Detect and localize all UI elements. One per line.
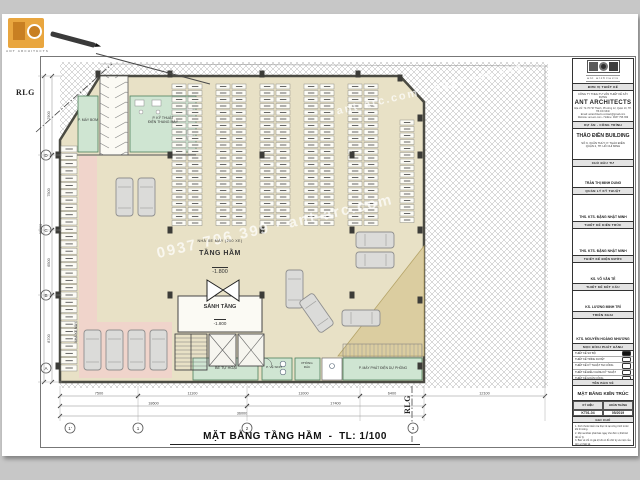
notes: 1. Kích thước kiểm tra thực tế tại công … xyxy=(573,423,633,448)
sheet-title: MẶT BẰNG TẦNG HẦM - TL: 1/100 xyxy=(170,431,420,445)
structural-column xyxy=(356,71,361,78)
structural-column xyxy=(350,292,355,299)
lobby-level: -1.800 xyxy=(214,319,227,326)
drawing-meta: KÝ HIỆU HOÀN THÀNH KT01-04 05/2019 xyxy=(573,400,633,416)
drawing-name-header: TÊN BẢN VẼ xyxy=(573,379,633,386)
role-sign-1: THS. KTS. ĐẶNG NHẬT MINH xyxy=(573,195,633,221)
equipment-box xyxy=(135,100,144,106)
structural-column xyxy=(350,227,355,234)
role-header-0: CHỦ ĐẦU TƯ xyxy=(573,159,633,167)
dimension-value: 17400 xyxy=(330,402,341,406)
chair xyxy=(156,110,160,114)
basement-label: TẦNG HẦM xyxy=(180,250,260,259)
pump-room xyxy=(78,96,98,152)
checkbox xyxy=(622,363,631,368)
role-header-4: THIẾT KẾ KẾT CẤU xyxy=(573,283,633,291)
notes-header: GHI CHÚ xyxy=(573,416,633,423)
role-sign-0: TRẦN THỊ MINH DUNG xyxy=(573,167,633,187)
structural-column xyxy=(398,75,403,82)
checkbox xyxy=(622,357,631,362)
role-header-2: THIẾT KẾ KIẾN TRÚC xyxy=(573,221,633,229)
role-sign-4: KS. LƯƠNG MINH TRÍ xyxy=(573,291,633,311)
screenshot-root: { "plan": { "title": "MẶT BẰNG TẦNG HẦM"… xyxy=(0,0,640,480)
structural-column xyxy=(260,71,265,78)
structural-column xyxy=(418,297,423,304)
symbol-label: KÝ HIỆU xyxy=(573,401,603,410)
rlg-label-bottom: RLG xyxy=(403,395,412,414)
car xyxy=(356,232,394,248)
role-sign-2: THS. KTS. ĐẶNG NHẬT MINH xyxy=(573,229,633,255)
ant-architects-logo-icon xyxy=(587,60,620,73)
electrical-room-label2: ĐIỆN THANG MÁY xyxy=(132,120,194,124)
car xyxy=(84,330,101,370)
dimension-value: 8700 xyxy=(47,334,51,342)
rlg-label-top: RLG xyxy=(16,88,35,97)
role-sign-3: KS. VÕ VĂN TẾ xyxy=(573,263,633,283)
service-room xyxy=(322,358,342,380)
car xyxy=(342,310,380,326)
dimension-value: 7500 xyxy=(47,188,51,196)
basement-level: -1.800 xyxy=(212,267,228,275)
checkbox xyxy=(622,370,631,375)
role-header-1: QUẢN LÝ KỸ THUẬT xyxy=(573,187,633,195)
role-sign-5: KTS. NGUYỄN HOÀNG NHƯƠNG xyxy=(573,319,633,343)
design-unit-header: ĐƠN VỊ THIẾT KẾ xyxy=(573,83,633,91)
left-zone-label: NHÀ XE MÁY xyxy=(74,302,78,362)
dimension-value: 6400 xyxy=(388,392,396,396)
moto-count-label: NHÀ XE MÁY (200 XE) xyxy=(165,239,275,243)
trash-label2: RÁC xyxy=(295,366,319,370)
ant-logo-mark xyxy=(13,22,25,40)
dimension-value: 12100 xyxy=(479,392,490,396)
car xyxy=(356,252,394,268)
svg-text:1: 1 xyxy=(137,426,140,431)
equipment-box xyxy=(152,100,161,106)
generator-label: P. MÁY PHÁT ĐIỆN DỰ PHÒNG xyxy=(345,366,421,370)
dimension-value: 7900 xyxy=(47,111,51,119)
ant-logo-ring xyxy=(27,24,42,39)
structural-column xyxy=(418,115,423,122)
car xyxy=(138,178,155,216)
title-block: ant architects ĐƠN VỊ THIẾT KẾ CÔNG TY T… xyxy=(572,58,634,446)
project-info: THẢO ĐIỀN BUILDING SỐ 9, XUÂN THỦY, P. T… xyxy=(573,129,633,159)
role-header-5: TRIỂN KHAI xyxy=(573,311,633,319)
structural-column xyxy=(168,152,173,159)
dimension-value: 6500 xyxy=(47,258,51,266)
role-header-3: THIẾT KẾ ĐIỆN NƯỚC xyxy=(573,255,633,263)
septic-label: BỂ TỰ HOẠI xyxy=(196,366,256,371)
structural-column xyxy=(56,363,61,370)
logo-wordmark: ant architects xyxy=(586,75,620,82)
grille-band xyxy=(343,344,422,357)
dimension-value: 36000 xyxy=(237,412,248,416)
issue-header: MỤC ĐÍCH PHÁT HÀNH xyxy=(573,343,633,351)
date-label: HOÀN THÀNH xyxy=(603,401,633,410)
svg-text:B: B xyxy=(44,293,47,298)
project-name: THẢO ĐIỀN BUILDING xyxy=(574,133,632,139)
company-website: Website: ant-arc.com - Hotline: 0937 796… xyxy=(574,116,632,119)
car xyxy=(150,330,167,370)
dimension-value: 30600 xyxy=(39,224,43,235)
structural-column xyxy=(350,152,355,159)
car xyxy=(128,330,145,370)
dimension-value: 18600 xyxy=(148,402,159,406)
structural-column xyxy=(260,152,265,159)
dimension-value: 11100 xyxy=(188,392,198,396)
sink-fixture xyxy=(330,364,335,369)
structural-column xyxy=(260,292,265,299)
company-type: CÔNG TY TNHH TƯ VẤN THIẾT KẾ XÂY DỰNG xyxy=(574,93,632,99)
project-address2: QUẬN 2, TP. HỒ CHÍ MINH xyxy=(574,145,632,149)
structural-column xyxy=(168,227,173,234)
car xyxy=(106,330,123,370)
checkbox xyxy=(622,351,631,356)
project-header: DỰ ÁN - CÔNG TRÌNH xyxy=(573,121,633,129)
pump-room-label: P. MÁY BƠM xyxy=(75,118,101,122)
structural-column xyxy=(168,292,173,299)
dimension-value: 11000 xyxy=(298,392,308,396)
note-line: 2. Mọi sai khác phải báo ngay cho đơn vị… xyxy=(575,432,631,439)
moto-ramp-chevrons xyxy=(100,76,128,155)
ant-logo xyxy=(8,18,44,48)
issue-checklist: THIẾT KẾ SƠ BỘ THIẾT KẾ TRÌNH DUYỆT THIẾ… xyxy=(573,351,633,379)
toilet-fixture xyxy=(280,369,286,375)
note-line: 3. Bản vẽ chỉ có giá trị khi có đủ chữ k… xyxy=(575,439,631,446)
wc-label: P. VỆ SINH xyxy=(261,366,287,370)
ant-logo-caption: ANT ARCHITECTS xyxy=(6,49,66,53)
drawing-name: MẶT BẰNG KIẾN TRÚC xyxy=(573,386,633,400)
car xyxy=(116,178,133,216)
dimension-value: 7500 xyxy=(95,392,103,396)
chair xyxy=(139,110,143,114)
title-block-logo: ant architects xyxy=(573,59,633,83)
structural-column xyxy=(418,227,423,234)
company-name: ANT ARCHITECTS xyxy=(574,100,632,106)
lobby-label: SẢNH TẦNG xyxy=(185,304,255,311)
structural-column xyxy=(418,152,423,159)
structural-column xyxy=(96,71,101,78)
floor-plan-canvas: 1'123DCBA7500111001100064001210018600174… xyxy=(0,0,640,480)
company-info: CÔNG TY TNHH TƯ VẤN THIẾT KẾ XÂY DỰNG AN… xyxy=(573,91,633,121)
svg-text:1': 1' xyxy=(68,426,72,431)
note-line: 1. Kích thước kiểm tra thực tế tại công … xyxy=(575,425,631,432)
